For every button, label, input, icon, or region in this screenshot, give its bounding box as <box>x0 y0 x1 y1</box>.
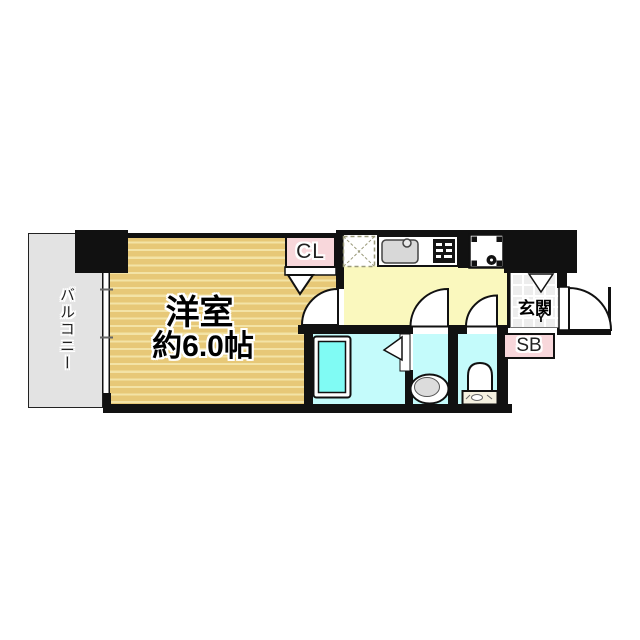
washroom-door-arc <box>411 289 449 327</box>
refrigerator-space-icon <box>344 237 375 267</box>
shoebox-label: SB <box>516 335 541 357</box>
closet-box: CL <box>285 236 336 268</box>
entrance-door-arc <box>569 288 611 330</box>
balcony-label: バルコニー <box>56 287 76 387</box>
closet-label: CL <box>296 240 325 264</box>
bath-folding-door-mark <box>384 334 410 371</box>
entrance-step-text: Y <box>533 310 549 325</box>
floor-plan: バルコニー 洋室 約6.0帖 CL 玄関 Y SB <box>0 0 640 640</box>
shoebox-box: SB <box>503 333 555 359</box>
entrance-step-mark <box>529 274 553 292</box>
balcony-window <box>100 273 113 393</box>
washing-machine-pan-icon <box>470 235 504 268</box>
kitchen-counter <box>378 236 458 266</box>
room-size-label: 約6.0帖 <box>118 321 288 365</box>
room-door-arc <box>302 289 338 325</box>
bathtub-icon <box>314 337 351 398</box>
toilet-icon <box>463 363 498 405</box>
sink-icon <box>382 240 418 263</box>
toilet-door-arc <box>466 296 497 327</box>
stove-icon <box>433 239 455 263</box>
washbasin-icon <box>411 375 449 404</box>
faucet-icon <box>403 239 411 247</box>
